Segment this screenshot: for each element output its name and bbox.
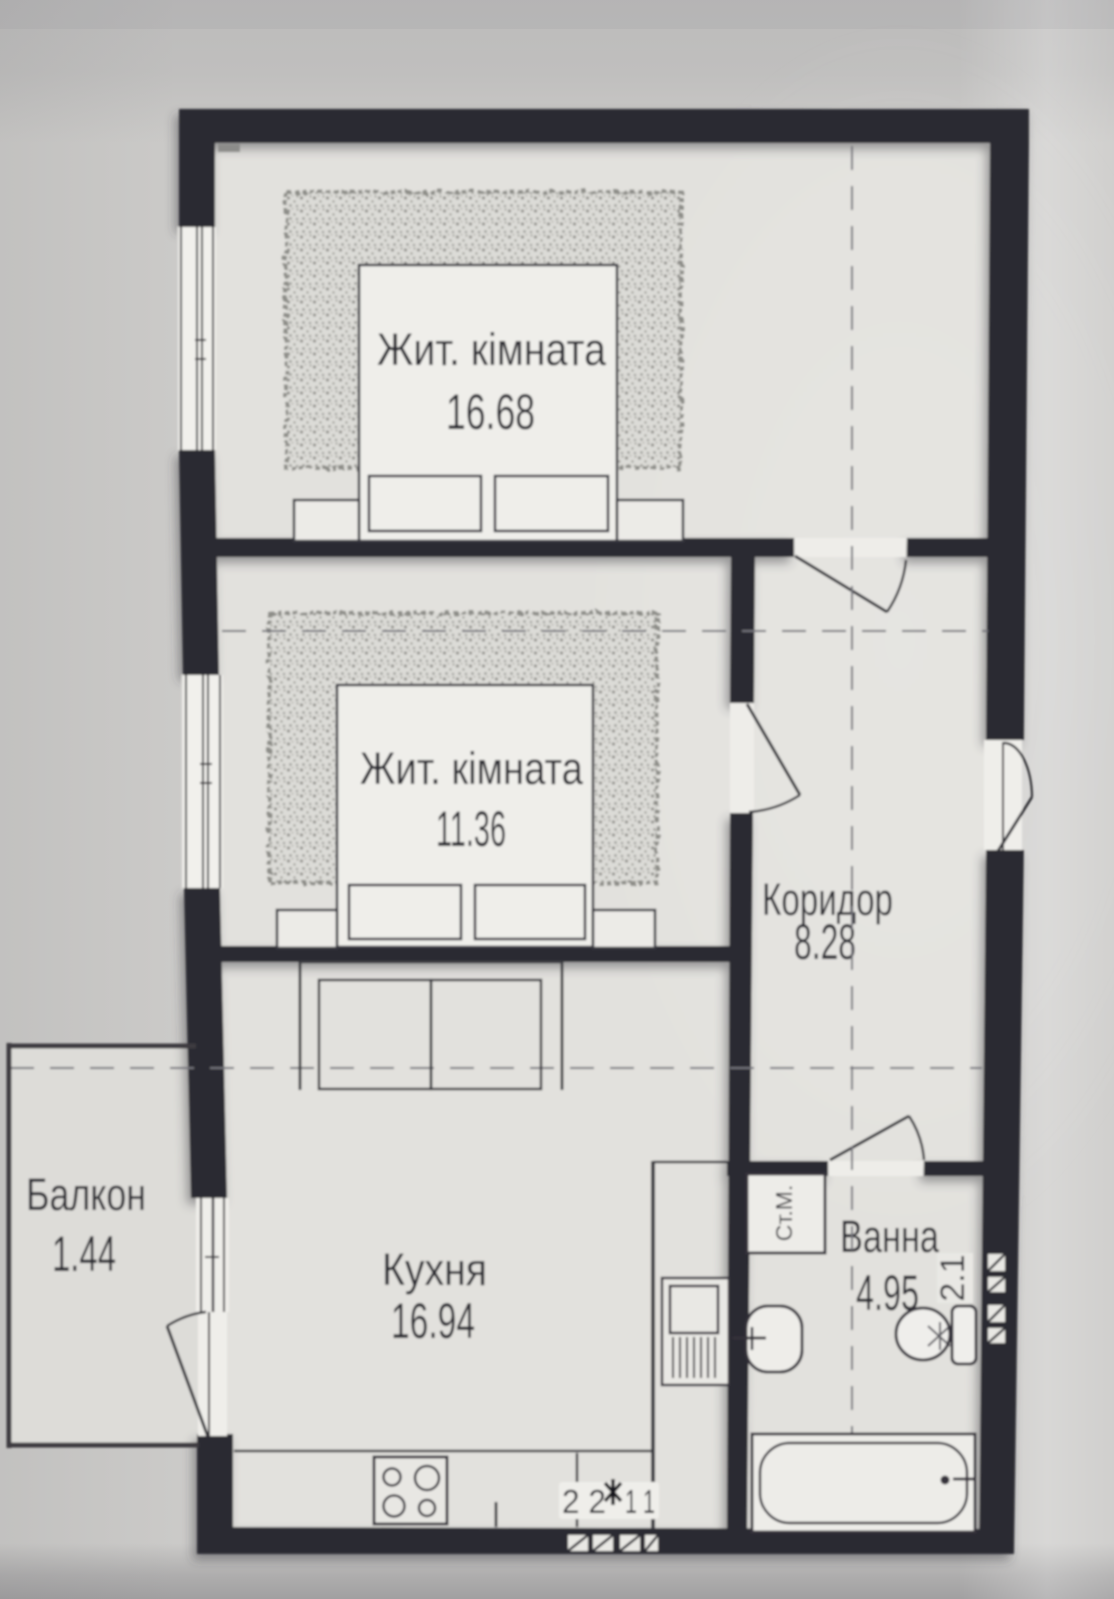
- svg-text:11.36: 11.36: [436, 801, 506, 857]
- svg-text:Жит. кімната: Жит. кімната: [360, 743, 584, 794]
- svg-text:2.1: 2.1: [934, 1254, 972, 1301]
- svg-text:1.44: 1.44: [52, 1226, 116, 1282]
- svg-text:Ванна: Ванна: [840, 1211, 940, 1262]
- svg-text:16.68: 16.68: [446, 384, 535, 440]
- svg-text:Балкон: Балкон: [26, 1169, 146, 1220]
- svg-text:8.28: 8.28: [794, 914, 856, 970]
- svg-text:1 1: 1 1: [625, 1483, 655, 1520]
- svg-text:16.94: 16.94: [391, 1293, 475, 1349]
- svg-text:Кухня: Кухня: [382, 1244, 487, 1295]
- svg-text:Жит. кімната: Жит. кімната: [377, 324, 607, 375]
- svg-text:2 2: 2 2: [562, 1483, 606, 1520]
- svg-text:Ст.М.: Ст.М.: [771, 1185, 797, 1242]
